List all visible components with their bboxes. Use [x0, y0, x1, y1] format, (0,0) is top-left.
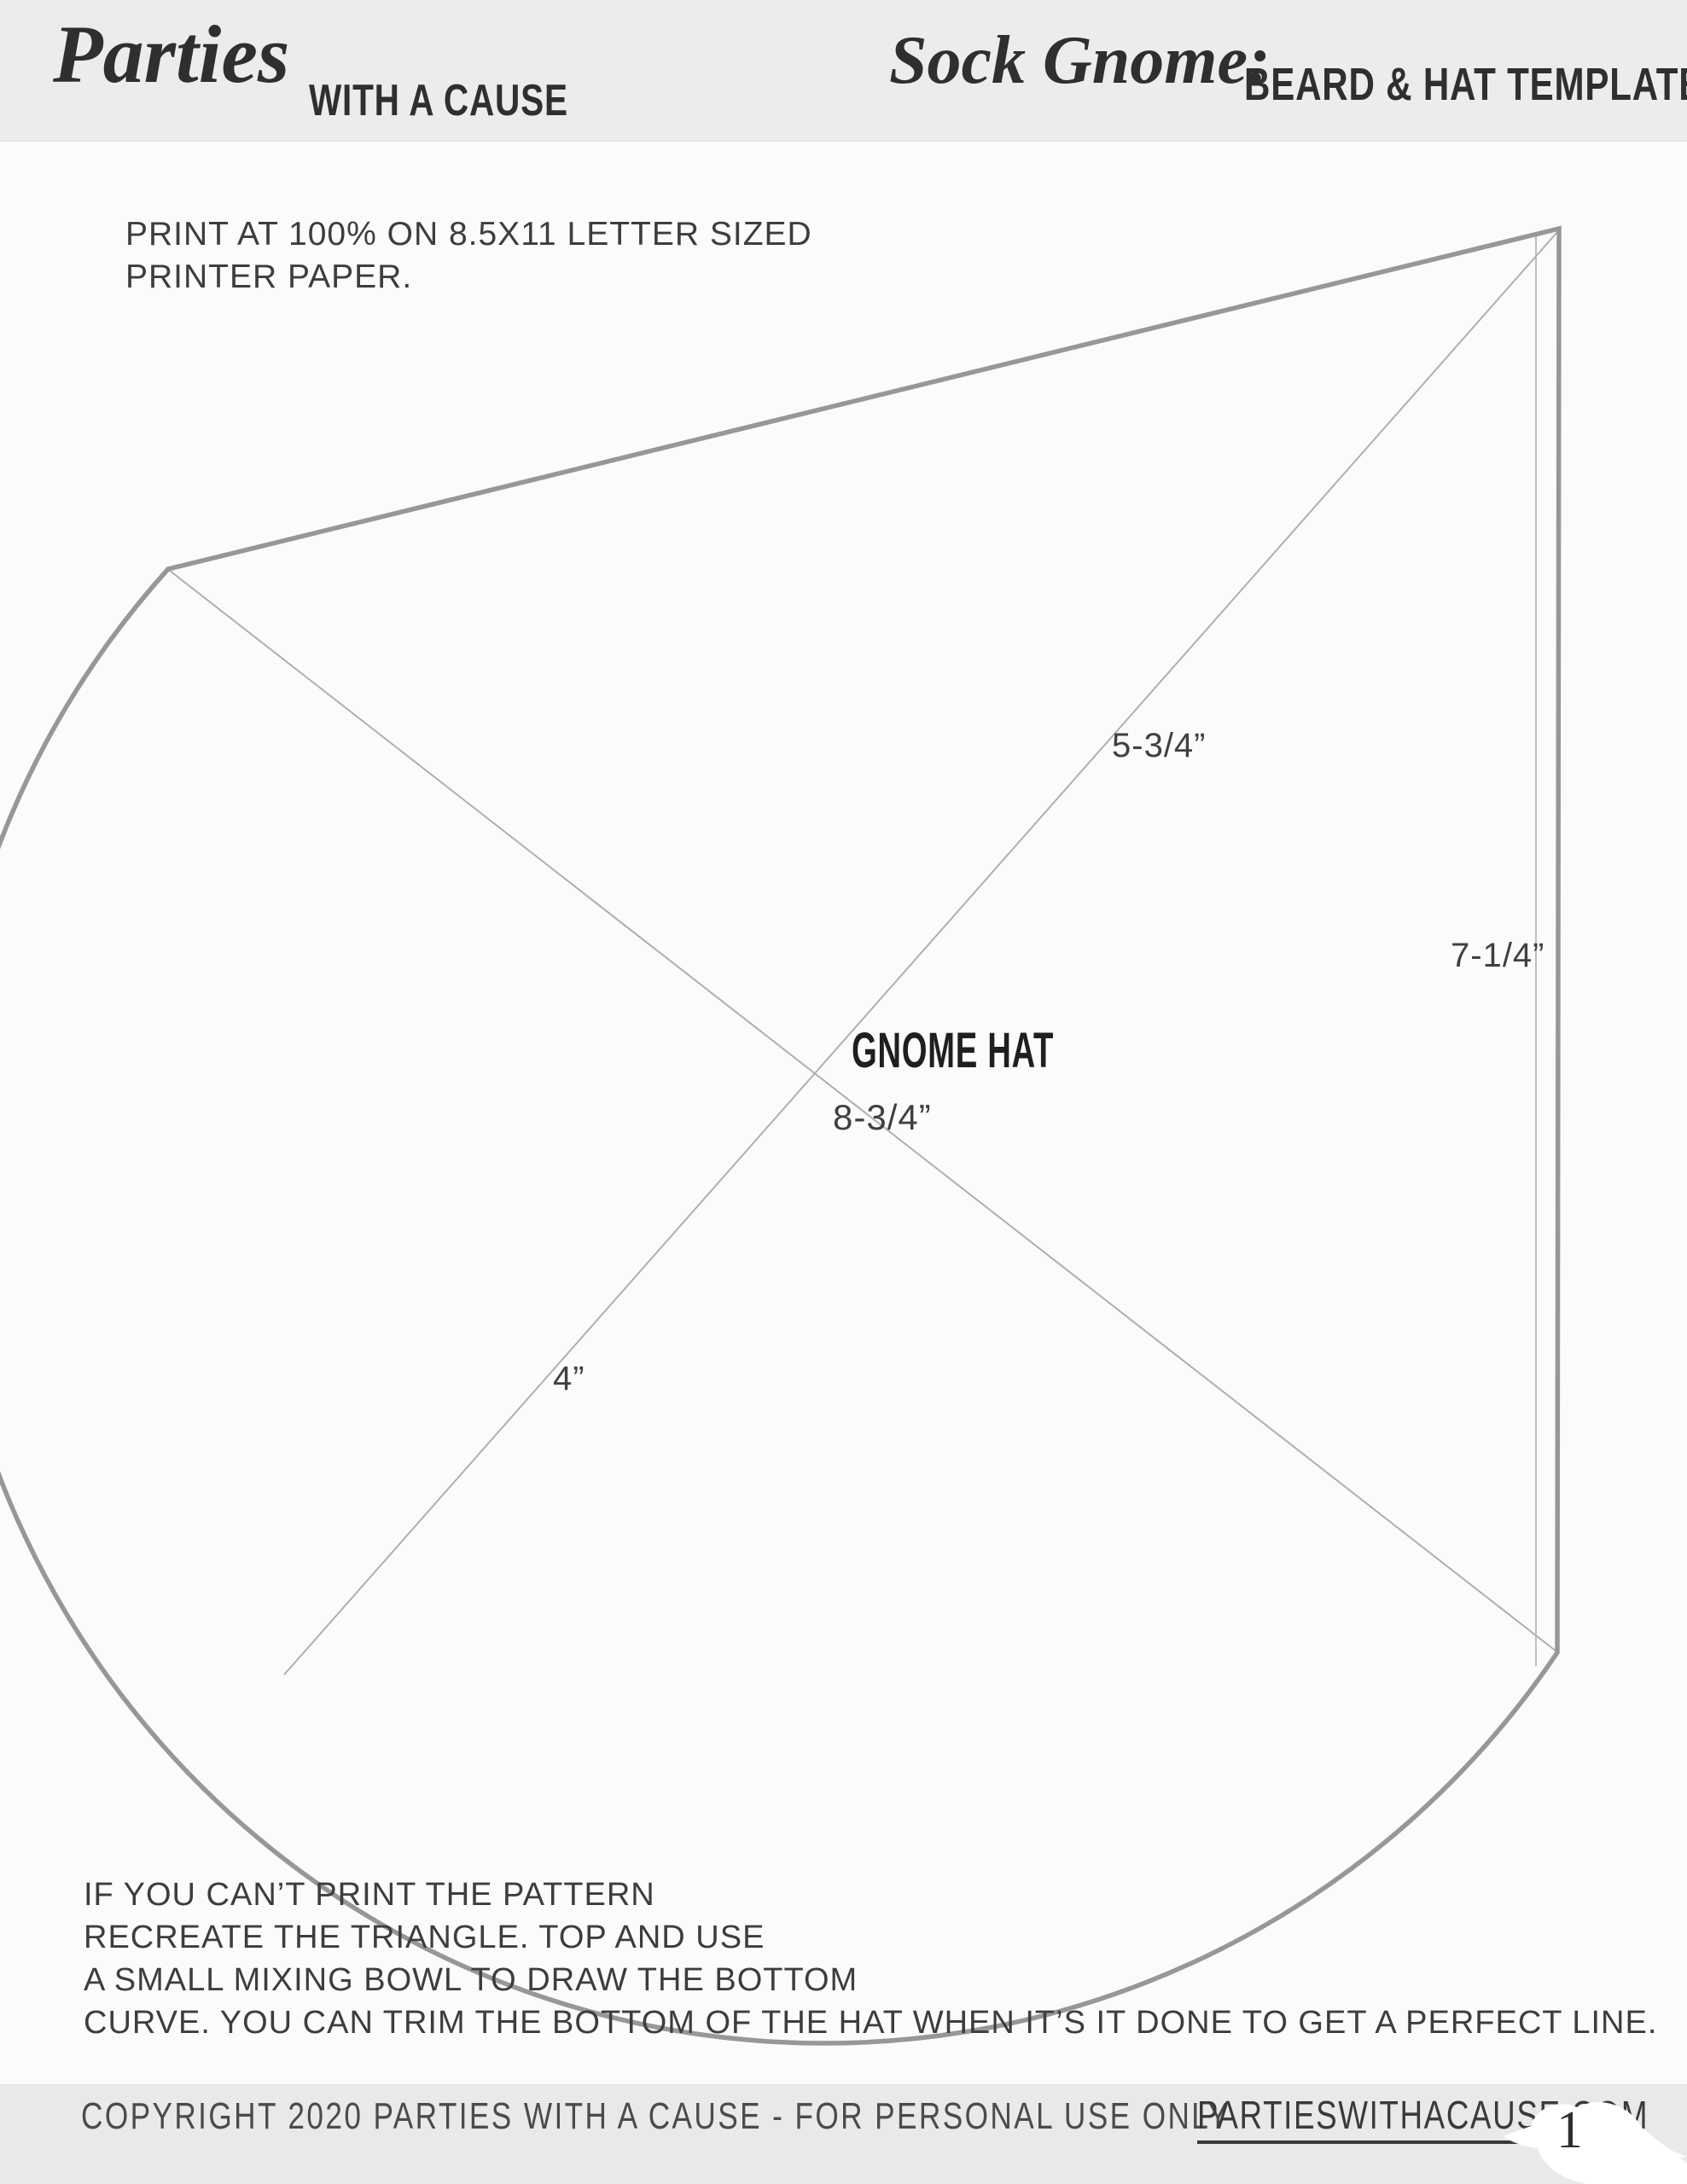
fallback-instructions-line2: RECREATE THE TRIANGLE. TOP AND USE [84, 1916, 1657, 1959]
page-number: 1 [1556, 2100, 1583, 2161]
fallback-instructions-line4: CURVE. YOU CAN TRIM THE BOTTOM OF THE HA… [84, 2001, 1657, 2044]
fallback-instructions-line3: A SMALL MIXING BOWL TO DRAW THE BOTTOM [84, 1959, 1657, 2001]
bird-icon [1498, 2085, 1687, 2184]
fallback-instructions-line1: IF YOU CAN’T PRINT THE PATTERN [84, 1873, 1657, 1916]
measurement-center-diagonal: 8-3/4” [833, 1097, 932, 1138]
hat-outline [0, 229, 1559, 2043]
fallback-instructions: IF YOU CAN’T PRINT THE PATTERN RECREATE … [84, 1873, 1657, 2044]
guide-line-diagonal-apex-to-bottom-left [284, 232, 1557, 1675]
measurement-right-edge: 7-1/4” [1451, 937, 1545, 975]
measurement-top-diagonal: 5-3/4” [1112, 727, 1207, 765]
copyright-text: COPYRIGHT 2020 PARTIES WITH A CAUSE - FO… [81, 2095, 1230, 2138]
template-page: Parties WITH A CAUSE Sock Gnome: BEARD &… [0, 0, 1687, 2184]
pattern-name-label: GNOME HAT [852, 1022, 1054, 1079]
measurement-bottom-diagonal: 4” [553, 1360, 585, 1398]
gnome-hat-pattern-drawing [0, 0, 1687, 2184]
